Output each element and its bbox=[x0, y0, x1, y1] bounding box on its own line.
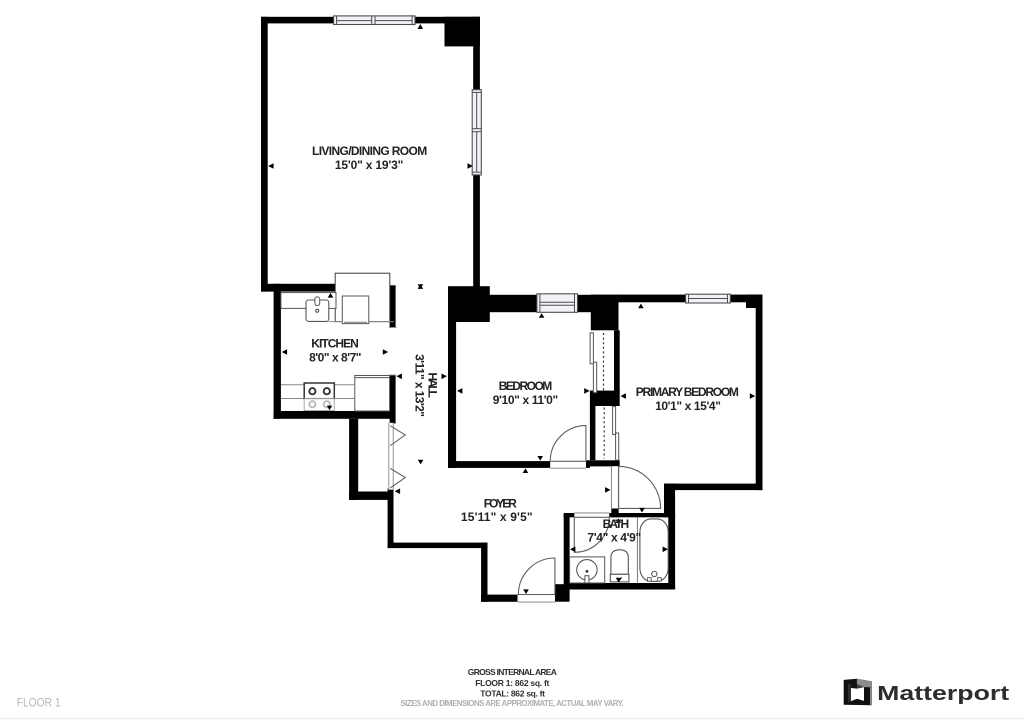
svg-text:3'11" x 13'2": 3'11" x 13'2" bbox=[413, 354, 427, 417]
svg-text:HALL: HALL bbox=[426, 373, 440, 398]
svg-text:FLOOR 1: FLOOR 1 bbox=[17, 695, 61, 709]
svg-text:9'10" x 11'0": 9'10" x 11'0" bbox=[493, 393, 559, 407]
svg-text:FLOOR 1: 862 sq. ft: FLOOR 1: 862 sq. ft bbox=[475, 678, 549, 688]
svg-text:7'4" x 4'9": 7'4" x 4'9" bbox=[587, 530, 641, 544]
svg-text:BATH: BATH bbox=[603, 517, 630, 531]
svg-text:TOTAL: 862 sq. ft: TOTAL: 862 sq. ft bbox=[480, 688, 545, 698]
svg-text:PRIMARY BEDROOM: PRIMARY BEDROOM bbox=[636, 385, 739, 399]
svg-text:KITCHEN: KITCHEN bbox=[311, 337, 359, 351]
svg-text:15'11" x 9'5": 15'11" x 9'5" bbox=[461, 510, 533, 524]
svg-text:BEDROOM: BEDROOM bbox=[499, 379, 553, 393]
svg-text:SIZES AND DIMENSIONS ARE APPRO: SIZES AND DIMENSIONS ARE APPROXIMATE, AC… bbox=[401, 699, 624, 708]
svg-text:GROSS INTERNAL AREA: GROSS INTERNAL AREA bbox=[468, 667, 557, 677]
svg-text:Matterport: Matterport bbox=[877, 682, 1009, 705]
svg-text:LIVING/DINING ROOM: LIVING/DINING ROOM bbox=[312, 144, 427, 158]
svg-text:10'1" x 15'4": 10'1" x 15'4" bbox=[655, 399, 721, 413]
svg-text:15'0" x 19'3": 15'0" x 19'3" bbox=[335, 158, 403, 172]
svg-text:FOYER: FOYER bbox=[484, 497, 517, 511]
svg-text:8'0" x 8'7": 8'0" x 8'7" bbox=[309, 351, 361, 365]
